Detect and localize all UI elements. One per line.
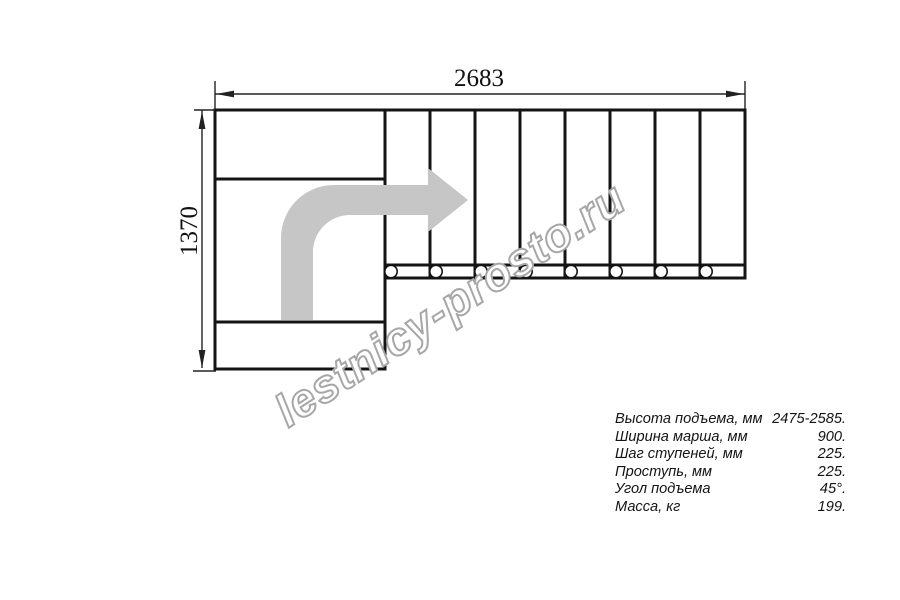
spec-row: Угол подъема 45°. — [615, 481, 846, 499]
spec-label: Масса, кг — [615, 499, 680, 517]
spec-row: Масса, кг 199. — [615, 499, 846, 517]
height-dimension-label: 1370 — [176, 206, 203, 256]
dimension-arrowhead-icon — [199, 350, 206, 368]
spec-label: Угол подъема — [615, 481, 710, 499]
dimension-arrowhead-icon — [216, 91, 234, 98]
baluster-circle — [610, 265, 622, 277]
top-dimension: 2683 — [215, 65, 745, 109]
spec-value: 900. — [818, 429, 846, 447]
stair-plan-canvas: 2683 1370 lestnicy-prosto.ru Высота подъ… — [0, 0, 900, 600]
specs-table: Высота подъема, мм 2475-2585. Ширина мар… — [615, 411, 846, 516]
spec-value: 199. — [818, 499, 846, 517]
spec-label: Ширина марша, мм — [615, 429, 748, 447]
direction-arrow-icon — [281, 168, 468, 320]
baluster-circle — [475, 265, 487, 277]
spec-value: 45°. — [820, 481, 846, 499]
spec-row: Ширина марша, мм 900. — [615, 429, 846, 447]
spec-value: 2475-2585. — [772, 411, 846, 429]
spec-label: Шаг ступеней, мм — [615, 446, 743, 464]
spec-row: Шаг ступеней, мм 225. — [615, 446, 846, 464]
dimension-arrowhead-icon — [199, 111, 206, 129]
spec-value: 225. — [818, 464, 846, 482]
spec-label: Высота подъема, мм — [615, 411, 763, 429]
width-dimension-label: 2683 — [454, 65, 504, 92]
baluster-circle — [565, 265, 577, 277]
dimension-arrowhead-icon — [726, 91, 744, 98]
spec-label: Проступь, мм — [615, 464, 712, 482]
baluster-circles — [385, 265, 712, 277]
baluster-circle — [520, 265, 532, 277]
spec-value: 225. — [818, 446, 846, 464]
spec-row: Проступь, мм 225. — [615, 464, 846, 482]
baluster-circle — [655, 265, 667, 277]
spec-row: Высота подъема, мм 2475-2585. — [615, 411, 846, 429]
baluster-circle — [700, 265, 712, 277]
baluster-circle — [385, 265, 397, 277]
left-dimension: 1370 — [176, 110, 216, 371]
baluster-circle — [430, 265, 442, 277]
